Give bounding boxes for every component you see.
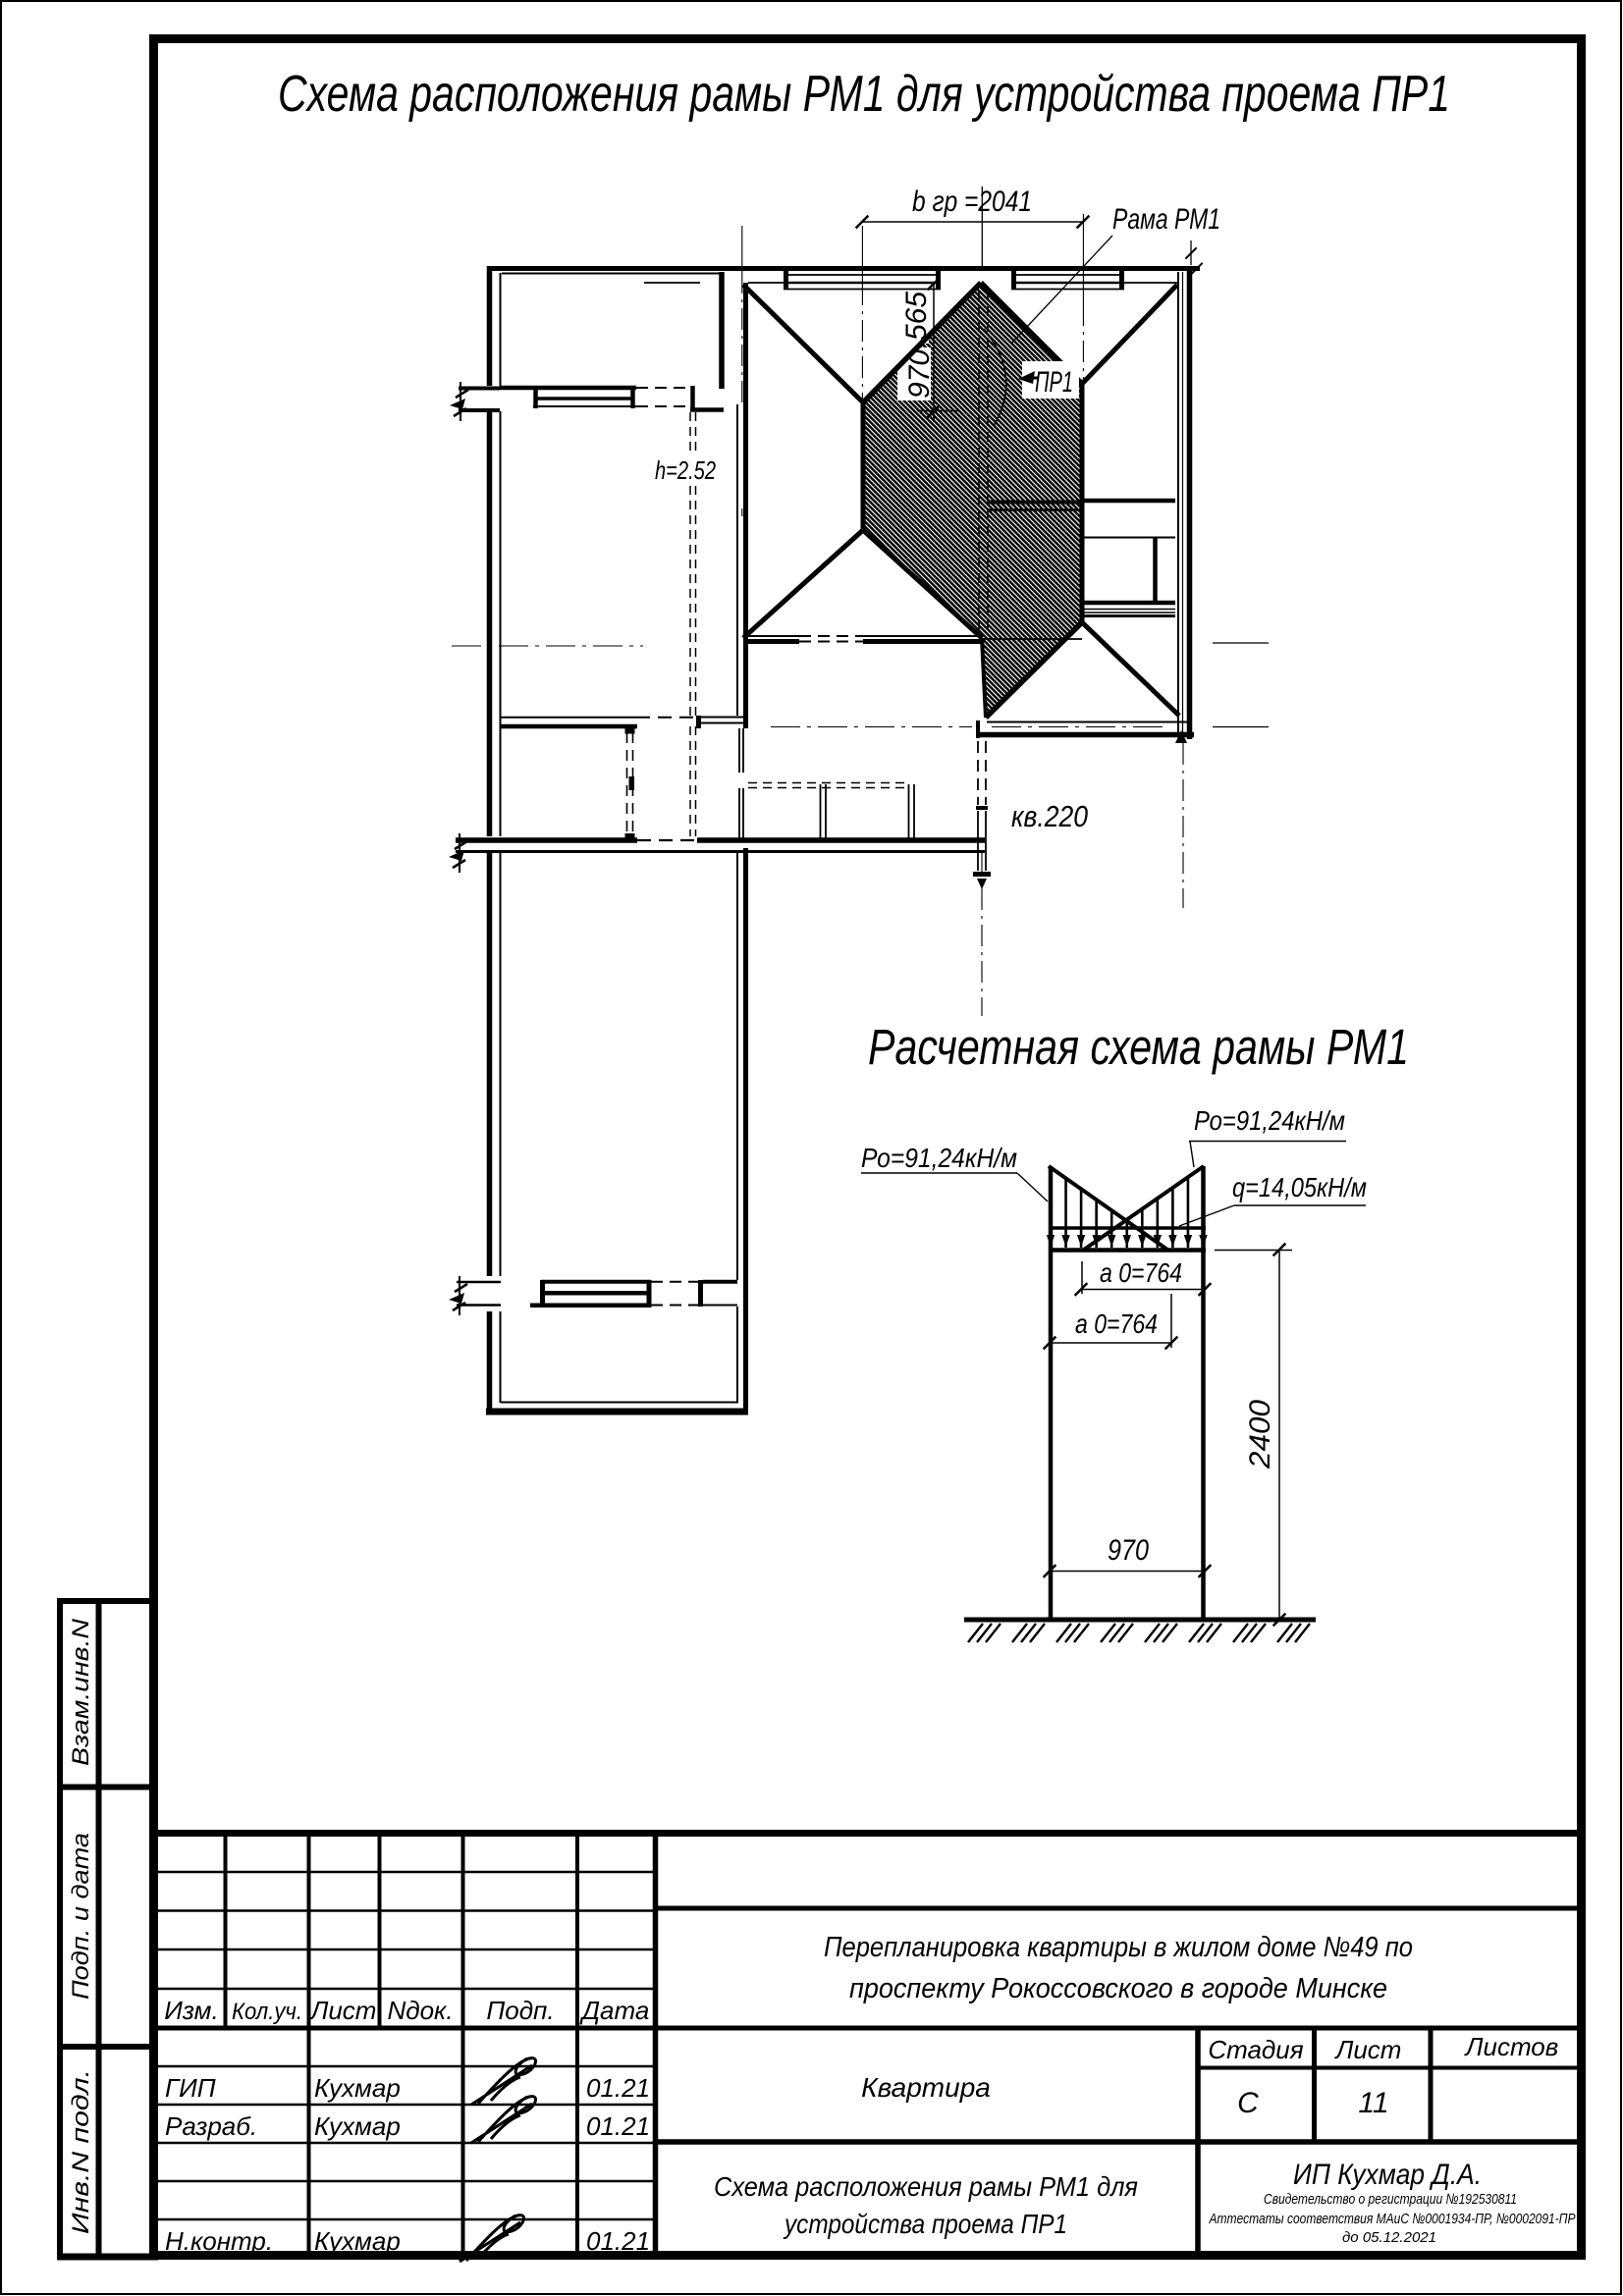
svg-text:Аттестаты соответствия МАиС №: Аттестаты соответствия МАиС №0001934-ПР,…	[1209, 2211, 1576, 2227]
svg-text:Квартира: Квартира	[861, 2072, 991, 2103]
svg-text:Листов: Листов	[1464, 2032, 1559, 2061]
svg-text:Схема расположения рамы РМ1 дл: Схема расположения рамы РМ1 для	[714, 2171, 1138, 2202]
svg-text:ГИП: ГИП	[165, 2073, 216, 2103]
svg-text:b гр =2041: b гр =2041	[912, 186, 1032, 218]
svg-text:Разраб.: Разраб.	[165, 2111, 257, 2141]
svg-text:до 05.12.2021: до 05.12.2021	[1342, 2229, 1436, 2246]
svg-text:С: С	[1237, 2087, 1259, 2119]
svg-text:Расчетная схема рамы РМ1: Расчетная схема рамы РМ1	[868, 1019, 1409, 1075]
svg-text:Схема расположения рамы РМ1 дл: Схема расположения рамы РМ1 для устройст…	[278, 66, 1450, 123]
svg-text:01.21: 01.21	[586, 2073, 650, 2103]
svg-text:Инв.N подл.: Инв.N подл.	[68, 2069, 94, 2234]
svg-text:проспекту Рокоссовского в горо: проспекту Рокоссовского в городе Минске	[849, 1973, 1387, 2004]
svg-text:970: 970	[1108, 1534, 1149, 1567]
svg-text:Подп. и дата: Подп. и дата	[68, 1833, 94, 2000]
svg-text:Кухмар: Кухмар	[314, 2111, 401, 2141]
svg-text:Рама РМ1: Рама РМ1	[1112, 203, 1220, 236]
svg-text:2400: 2400	[1244, 1400, 1276, 1469]
svg-text:11: 11	[1358, 2087, 1388, 2119]
svg-text:Ро=91,24кН/м: Ро=91,24кН/м	[861, 1143, 1017, 1173]
svg-text:565: 565	[900, 292, 933, 341]
svg-text:q=14,05кН/м: q=14,05кН/м	[1232, 1172, 1367, 1202]
svg-text:кв.220: кв.220	[1011, 799, 1088, 833]
svg-text:Кухмар: Кухмар	[314, 2073, 401, 2103]
svg-text:01.21: 01.21	[586, 2111, 650, 2141]
svg-text:Кухмар: Кухмар	[314, 2226, 401, 2256]
svg-text:Дата: Дата	[579, 1996, 650, 2025]
svg-text:Н.контр.: Н.контр.	[165, 2226, 273, 2256]
svg-text:ИП Кухмар Д.А.: ИП Кухмар Д.А.	[1293, 2159, 1482, 2191]
svg-text:Изм.: Изм.	[164, 1996, 218, 2025]
svg-text:Кол.уч.: Кол.уч.	[232, 1999, 302, 2025]
svg-text:h=2.52: h=2.52	[655, 455, 716, 485]
svg-text:ПР1: ПР1	[1035, 366, 1073, 399]
svg-text:Подп.: Подп.	[486, 1996, 554, 2025]
svg-text:Nдок.: Nдок.	[387, 1996, 453, 2025]
svg-text:устройства проема ПР1: устройства проема ПР1	[783, 2209, 1067, 2239]
svg-text:Взам.инв.N: Взам.инв.N	[68, 1618, 94, 1766]
svg-text:970: 970	[903, 349, 936, 399]
svg-text:Стадия: Стадия	[1208, 2035, 1303, 2064]
svg-text:Перепланировка квартиры в жило: Перепланировка квартиры в жилом доме №49…	[824, 1932, 1413, 1963]
svg-text:a 0=764: a 0=764	[1075, 1308, 1158, 1339]
svg-text:Свидетельство о регистрации №: Свидетельство о регистрации №192530811	[1264, 2191, 1517, 2208]
svg-text:01.21: 01.21	[586, 2226, 650, 2256]
svg-text:a 0=764: a 0=764	[1100, 1257, 1182, 1288]
svg-text:Лист: Лист	[1334, 2035, 1402, 2064]
svg-text:Ро=91,24кН/м: Ро=91,24кН/м	[1194, 1105, 1345, 1136]
svg-text:Лист: Лист	[309, 1996, 377, 2025]
